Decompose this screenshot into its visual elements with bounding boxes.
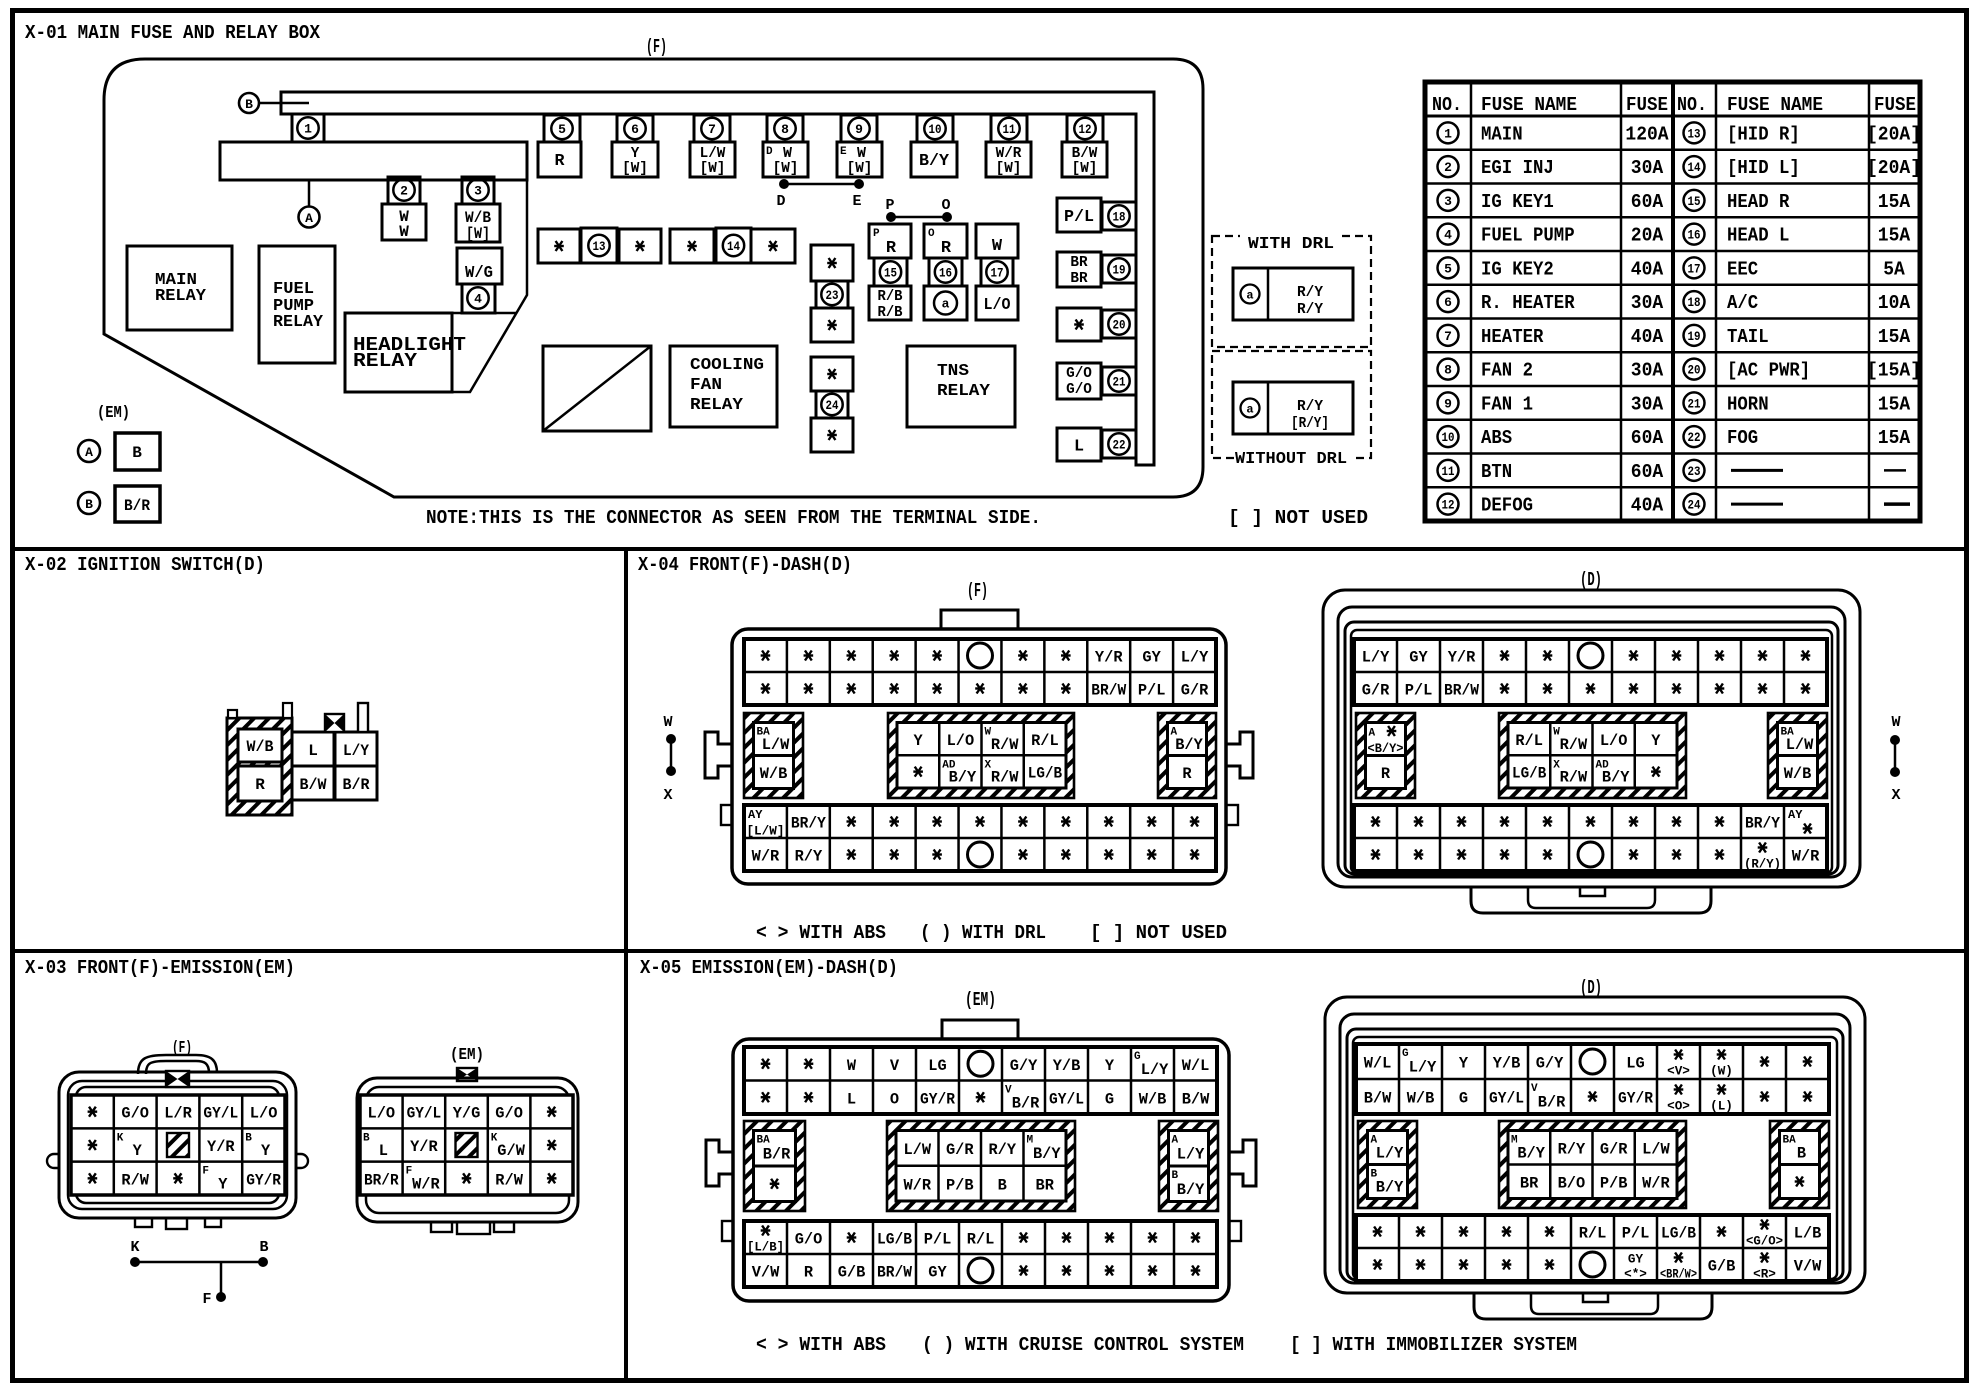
svg-text:R/L: R/L — [1031, 732, 1059, 750]
svg-text:D: D — [776, 193, 785, 210]
svg-text:HEAD R: HEAD R — [1727, 191, 1790, 213]
svg-text:R/Y: R/Y — [1558, 1141, 1586, 1159]
svg-text:O: O — [928, 228, 935, 240]
svg-text:10: 10 — [929, 122, 942, 137]
svg-text:[W]: [W] — [466, 225, 490, 243]
svg-text:B/Y: B/Y — [919, 152, 950, 171]
svg-text:R/B: R/B — [878, 288, 903, 305]
svg-text:W/R: W/R — [1642, 1175, 1670, 1193]
svg-text:X-05 EMISSION(EM)-DASH(D): X-05 EMISSION(EM)-DASH(D) — [640, 957, 898, 979]
svg-text:60A: 60A — [1631, 461, 1664, 483]
svg-text:15: 15 — [1688, 194, 1701, 209]
svg-text:B/W: B/W — [1364, 1090, 1392, 1108]
svg-text:R: R — [255, 776, 265, 794]
svg-text:R/W: R/W — [495, 1171, 523, 1189]
svg-text:R: R — [941, 239, 952, 258]
svg-text:9: 9 — [1444, 396, 1452, 411]
svg-text:[L/B]: [L/B] — [747, 1240, 784, 1255]
svg-text:13: 13 — [593, 239, 606, 254]
svg-text:W: W — [992, 237, 1003, 256]
svg-text:BR/R: BR/R — [364, 1171, 399, 1189]
svg-text:[15A]: [15A] — [1867, 360, 1921, 382]
svg-text:X-04 FRONT(F)-DASH(D): X-04 FRONT(F)-DASH(D) — [638, 554, 852, 576]
svg-text:GY/R: GY/R — [1618, 1090, 1653, 1108]
svg-text:LG/B: LG/B — [1028, 765, 1063, 783]
svg-text:3: 3 — [1444, 194, 1452, 209]
svg-text:Y: Y — [261, 1142, 271, 1160]
svg-text:10A: 10A — [1878, 292, 1911, 314]
svg-text:K: K — [117, 1132, 124, 1144]
svg-text:30A: 30A — [1631, 393, 1664, 415]
svg-text:L/Y: L/Y — [1181, 649, 1209, 667]
svg-text:R: R — [886, 239, 897, 258]
svg-text:L/W: L/W — [903, 1141, 931, 1159]
svg-text:LG: LG — [928, 1057, 946, 1075]
svg-text:Y: Y — [914, 732, 924, 750]
svg-text:F: F — [202, 1166, 209, 1178]
svg-text:8: 8 — [1444, 363, 1452, 378]
svg-text:Y/R: Y/R — [410, 1138, 438, 1156]
svg-text:RELAY: RELAY — [690, 396, 744, 415]
svg-text:BR/Y: BR/Y — [1745, 815, 1780, 833]
svg-text:V/W: V/W — [752, 1264, 780, 1282]
svg-text:X: X — [663, 787, 672, 804]
svg-text:<BR/W>: <BR/W> — [1660, 1267, 1697, 1282]
svg-text:WITH DRL: WITH DRL — [1248, 235, 1334, 254]
svg-text:Y: Y — [218, 1175, 228, 1193]
svg-text:B/Y: B/Y — [1177, 1181, 1205, 1199]
svg-text:17: 17 — [1688, 261, 1701, 276]
svg-text:V: V — [890, 1057, 900, 1075]
svg-text:FUSE NAME: FUSE NAME — [1481, 94, 1577, 116]
svg-text:[ ] NOT USED: [ ] NOT USED — [1090, 922, 1227, 944]
svg-text:G/R: G/R — [946, 1141, 974, 1159]
svg-text:a: a — [1246, 289, 1253, 303]
svg-text:MAIN: MAIN — [1481, 123, 1523, 145]
svg-text:B/Y: B/Y — [1175, 736, 1203, 754]
svg-text:Y: Y — [1651, 732, 1661, 750]
svg-text:BA: BA — [1783, 1135, 1797, 1147]
svg-text:R/L: R/L — [1515, 732, 1543, 750]
svg-text:L/W: L/W — [1642, 1141, 1670, 1159]
svg-text:14: 14 — [727, 239, 740, 254]
svg-text:R/W: R/W — [991, 769, 1019, 787]
svg-text:DEFOG: DEFOG — [1481, 495, 1533, 517]
svg-text:22: 22 — [1113, 438, 1126, 453]
svg-text:GY/L: GY/L — [203, 1105, 238, 1123]
svg-text:< > WITH ABS: < > WITH ABS — [756, 1334, 886, 1356]
svg-text:7: 7 — [1444, 329, 1452, 344]
svg-text:G: G — [1105, 1090, 1114, 1108]
svg-text:P: P — [885, 197, 894, 214]
svg-text:12: 12 — [1442, 498, 1455, 513]
svg-text:NO.: NO. — [1677, 94, 1707, 116]
svg-text:FUEL PUMP: FUEL PUMP — [1481, 225, 1575, 247]
svg-text:TNS: TNS — [937, 362, 969, 381]
svg-text:F: F — [202, 1291, 211, 1308]
svg-text:R/Y: R/Y — [1297, 301, 1323, 318]
svg-text:[ ] NOT USED: [ ] NOT USED — [1228, 507, 1368, 529]
svg-text:BR: BR — [1520, 1175, 1539, 1193]
svg-text:( ) WITH CRUISE CONTROL SYSTEM: ( ) WITH CRUISE CONTROL SYSTEM — [922, 1334, 1244, 1356]
svg-text:RELAY: RELAY — [273, 313, 324, 332]
svg-text:15A: 15A — [1878, 427, 1911, 449]
svg-text:R/Y: R/Y — [988, 1141, 1016, 1159]
svg-text:B/Y: B/Y — [1033, 1145, 1061, 1163]
svg-text:40A: 40A — [1631, 326, 1664, 348]
svg-text:8: 8 — [781, 122, 789, 137]
svg-text:Y/R: Y/R — [1095, 649, 1123, 667]
svg-text:B: B — [998, 1176, 1008, 1194]
svg-text:HEAD L: HEAD L — [1727, 225, 1789, 247]
svg-text:B: B — [1797, 1145, 1807, 1163]
svg-text:L/Y: L/Y — [1177, 1145, 1205, 1163]
svg-text:(R/Y): (R/Y) — [1744, 857, 1781, 872]
svg-text:P: P — [873, 228, 880, 240]
svg-text:16: 16 — [1688, 228, 1701, 243]
svg-text:P/B: P/B — [1600, 1175, 1628, 1193]
svg-text:L/Y: L/Y — [1362, 649, 1390, 667]
svg-text:40A: 40A — [1631, 495, 1664, 517]
svg-text:11: 11 — [1442, 464, 1455, 479]
svg-text:GY: GY — [1142, 649, 1161, 667]
svg-text:(F): (F) — [646, 36, 667, 58]
svg-text:B/R: B/R — [1538, 1094, 1566, 1112]
svg-text:D: D — [766, 146, 773, 158]
svg-text:B/Y: B/Y — [1376, 1179, 1404, 1197]
svg-text:21: 21 — [1113, 375, 1126, 390]
svg-text:GY/R: GY/R — [246, 1171, 281, 1189]
svg-text:[HID R]: [HID R] — [1727, 123, 1800, 145]
svg-text:B/Y: B/Y — [1517, 1145, 1545, 1163]
svg-text:19: 19 — [1113, 263, 1126, 278]
svg-text:[W]: [W] — [773, 160, 799, 177]
svg-text:[W]: [W] — [847, 160, 873, 177]
svg-text:40A: 40A — [1631, 258, 1664, 280]
svg-text:Y: Y — [1105, 1057, 1115, 1075]
svg-text:L/W: L/W — [762, 736, 790, 754]
svg-text:120A: 120A — [1625, 123, 1669, 145]
svg-text:B/Y: B/Y — [1602, 769, 1630, 787]
svg-text:O: O — [941, 197, 950, 214]
svg-text:V/W: V/W — [1794, 1258, 1822, 1276]
svg-text:B/R: B/R — [763, 1145, 791, 1163]
svg-text:GY/R: GY/R — [920, 1090, 955, 1108]
svg-text:G/O: G/O — [795, 1231, 823, 1249]
svg-text:[W]: [W] — [622, 160, 648, 177]
svg-text:B/W: B/W — [1182, 1090, 1210, 1108]
svg-text:P/L: P/L — [1064, 208, 1094, 227]
svg-text:R/Y: R/Y — [1297, 398, 1323, 415]
svg-text:(EM): (EM) — [965, 989, 996, 1011]
svg-text:16: 16 — [939, 266, 952, 281]
svg-text:W/G: W/G — [465, 264, 493, 283]
svg-text:AY: AY — [748, 808, 763, 822]
svg-text:COOLING: COOLING — [690, 356, 764, 375]
svg-text:G/O: G/O — [495, 1105, 523, 1123]
svg-text:< > WITH ABS: < > WITH ABS — [756, 922, 886, 944]
svg-text:<G/O>: <G/O> — [1746, 1234, 1783, 1249]
svg-text:2: 2 — [1444, 160, 1452, 175]
svg-text:A: A — [85, 445, 93, 460]
svg-text:R/L: R/L — [1579, 1225, 1607, 1243]
svg-text:18: 18 — [1113, 210, 1126, 225]
svg-text:Y/G: Y/G — [453, 1105, 481, 1123]
svg-text:(W): (W) — [1710, 1064, 1733, 1079]
svg-text:G/R: G/R — [1181, 682, 1209, 700]
svg-text:NO.: NO. — [1432, 94, 1462, 116]
svg-text:K: K — [130, 1239, 139, 1256]
svg-text:30A: 30A — [1631, 360, 1664, 382]
svg-text:X-01 MAIN FUSE AND RELAY BOX: X-01 MAIN FUSE AND RELAY BOX — [25, 22, 321, 44]
svg-text:W/L: W/L — [1182, 1057, 1210, 1075]
svg-text:3: 3 — [474, 184, 482, 199]
svg-text:RELAY: RELAY — [353, 350, 418, 372]
svg-text:A: A — [1369, 728, 1376, 740]
svg-text:W/B: W/B — [1139, 1090, 1167, 1108]
svg-text:30A: 30A — [1631, 292, 1664, 314]
svg-text:7: 7 — [708, 122, 716, 137]
svg-text:BR/Y: BR/Y — [791, 815, 826, 833]
svg-text:BR/W: BR/W — [1091, 682, 1126, 700]
svg-text:W: W — [1891, 714, 1900, 731]
svg-text:B/R: B/R — [343, 776, 370, 794]
svg-text:B/Y: B/Y — [949, 769, 977, 787]
svg-text:W/R: W/R — [903, 1176, 931, 1194]
svg-text:[L/W]: [L/W] — [746, 824, 784, 839]
svg-text:W: W — [847, 1057, 857, 1075]
svg-text:B: B — [132, 444, 142, 462]
svg-text:W: W — [399, 223, 409, 241]
svg-text:R: R — [1182, 765, 1192, 783]
svg-text:X-03 FRONT(F)-EMISSION(EM): X-03 FRONT(F)-EMISSION(EM) — [25, 957, 295, 979]
svg-text:LG/B: LG/B — [877, 1231, 912, 1249]
svg-text:A/C: A/C — [1727, 292, 1758, 314]
svg-text:B/R: B/R — [1012, 1094, 1040, 1112]
svg-text:W/B: W/B — [1407, 1090, 1435, 1108]
svg-text:[HID L]: [HID L] — [1727, 157, 1800, 179]
svg-text:FUSE: FUSE — [1626, 94, 1668, 116]
svg-text:G/O: G/O — [1066, 365, 1092, 382]
svg-text:B/O: B/O — [1558, 1175, 1586, 1193]
svg-text:BTN: BTN — [1481, 461, 1512, 483]
svg-text:W/R: W/R — [1792, 848, 1820, 866]
svg-text:1: 1 — [1444, 126, 1452, 141]
svg-text:A: A — [305, 211, 313, 226]
svg-text:FAN 1: FAN 1 — [1481, 393, 1533, 415]
svg-text:R: R — [804, 1264, 814, 1282]
svg-text:20: 20 — [1688, 363, 1701, 378]
svg-text:(EM): (EM) — [97, 404, 130, 423]
svg-text:L/Y: L/Y — [1141, 1061, 1169, 1079]
svg-text:W/B: W/B — [760, 765, 788, 783]
svg-text:R. HEATER: R. HEATER — [1481, 292, 1575, 314]
svg-text:19: 19 — [1688, 329, 1701, 344]
svg-text:11: 11 — [1003, 122, 1016, 137]
svg-text:18: 18 — [1688, 295, 1701, 310]
svg-text:G: G — [1459, 1090, 1468, 1108]
svg-text:2: 2 — [400, 184, 408, 199]
svg-text:( ) WITH DRL: ( ) WITH DRL — [920, 922, 1046, 944]
svg-text:P/L: P/L — [1138, 682, 1166, 700]
svg-text:G/O: G/O — [121, 1105, 149, 1123]
svg-text:<B/Y>: <B/Y> — [1368, 741, 1404, 756]
svg-text:[R/Y]: [R/Y] — [1291, 415, 1329, 432]
svg-text:22: 22 — [1688, 430, 1701, 445]
svg-text:Y: Y — [133, 1142, 143, 1160]
svg-text:P/B: P/B — [946, 1176, 974, 1194]
svg-text:24: 24 — [1688, 498, 1701, 513]
svg-text:(EM): (EM) — [450, 1046, 484, 1065]
svg-text:R/W: R/W — [991, 736, 1019, 754]
svg-text:a: a — [1246, 403, 1253, 417]
svg-text:FAN 2: FAN 2 — [1481, 360, 1533, 382]
svg-text:LG: LG — [1626, 1055, 1644, 1073]
svg-text:R: R — [555, 152, 566, 171]
svg-text:BR: BR — [1070, 254, 1087, 271]
svg-text:B/R: B/R — [124, 497, 150, 515]
svg-text:R/Y: R/Y — [1297, 284, 1323, 301]
svg-text:FUSE NAME: FUSE NAME — [1727, 94, 1823, 116]
svg-text:L/Y: L/Y — [1409, 1059, 1437, 1077]
svg-text:G/R: G/R — [1362, 682, 1390, 700]
svg-text:<*>: <*> — [1624, 1267, 1647, 1282]
svg-text:E: E — [852, 193, 861, 210]
svg-text:24: 24 — [826, 398, 839, 413]
svg-text:30A: 30A — [1631, 157, 1664, 179]
svg-text:1: 1 — [304, 122, 312, 137]
svg-text:P/L: P/L — [1622, 1225, 1650, 1243]
svg-text:G/W: G/W — [497, 1142, 525, 1160]
svg-text:[AC PWR]: [AC PWR] — [1727, 360, 1810, 382]
svg-text:L/O: L/O — [1600, 732, 1628, 750]
svg-text:a: a — [942, 297, 950, 312]
svg-text:FUSE: FUSE — [1874, 94, 1916, 116]
svg-text:RELAY: RELAY — [937, 382, 991, 401]
svg-text:HEATER: HEATER — [1481, 326, 1544, 348]
svg-text:E: E — [840, 146, 847, 158]
svg-text:EEC: EEC — [1727, 258, 1758, 280]
svg-text:L/W: L/W — [1786, 736, 1814, 754]
svg-text:WITHOUT DRL: WITHOUT DRL — [1235, 450, 1347, 469]
svg-text:5: 5 — [1444, 261, 1452, 276]
svg-text:GY: GY — [928, 1264, 947, 1282]
svg-text:(L): (L) — [1710, 1099, 1733, 1114]
svg-text:HORN: HORN — [1727, 393, 1769, 415]
svg-text:R: R — [1381, 765, 1391, 783]
svg-text:[W]: [W] — [1072, 160, 1098, 177]
svg-text:BR/W: BR/W — [877, 1264, 912, 1282]
svg-text:L/Y: L/Y — [1376, 1145, 1404, 1163]
svg-text:B: B — [85, 497, 93, 512]
svg-text:5A: 5A — [1883, 258, 1905, 280]
svg-text:W/R: W/R — [752, 848, 780, 866]
svg-text:L/O: L/O — [984, 296, 1011, 315]
svg-text:EGI INJ: EGI INJ — [1481, 157, 1554, 179]
svg-text:5: 5 — [558, 122, 566, 137]
svg-text:O: O — [890, 1090, 900, 1108]
svg-text:L/O: L/O — [368, 1105, 396, 1123]
svg-text:13: 13 — [1688, 126, 1701, 141]
svg-text:15: 15 — [884, 266, 897, 281]
svg-text:W/B: W/B — [1784, 765, 1812, 783]
svg-text:B: B — [363, 1132, 370, 1144]
svg-text:G/B: G/B — [838, 1264, 866, 1282]
svg-text:Y/B: Y/B — [1053, 1057, 1081, 1075]
svg-text:L/Y: L/Y — [343, 742, 369, 760]
svg-text:X: X — [1891, 787, 1900, 804]
svg-text:60A: 60A — [1631, 427, 1664, 449]
svg-text:X-02 IGNITION SWITCH(D): X-02 IGNITION SWITCH(D) — [25, 554, 265, 576]
svg-text:9: 9 — [855, 122, 863, 137]
svg-text:15A: 15A — [1878, 225, 1911, 247]
svg-text:Y: Y — [1459, 1055, 1469, 1073]
svg-text:GY/L: GY/L — [407, 1105, 442, 1123]
svg-text:BR: BR — [1036, 1176, 1055, 1194]
svg-text:IG KEY1: IG KEY1 — [1481, 191, 1554, 213]
svg-text:GY: GY — [1409, 649, 1428, 667]
svg-text:GY/L: GY/L — [1049, 1090, 1084, 1108]
svg-text:P/L: P/L — [1405, 682, 1433, 700]
svg-text:10: 10 — [1442, 430, 1455, 445]
svg-text:6: 6 — [1444, 295, 1452, 310]
svg-text:20A: 20A — [1631, 225, 1664, 247]
svg-text:L/R: L/R — [164, 1105, 192, 1123]
svg-text:(F): (F) — [967, 580, 988, 602]
svg-text:[ ] WITH IMMOBILIZER SYSTEM: [ ] WITH IMMOBILIZER SYSTEM — [1290, 1334, 1577, 1356]
svg-text:14: 14 — [1688, 160, 1701, 175]
svg-text:<V>: <V> — [1667, 1064, 1690, 1079]
svg-text:NOTE:THIS IS THE CONNECTOR AS: NOTE:THIS IS THE CONNECTOR AS SEEN FROM … — [426, 507, 1041, 529]
svg-text:23: 23 — [826, 288, 839, 303]
svg-text:L: L — [847, 1090, 856, 1108]
svg-text:R/B: R/B — [878, 304, 903, 321]
svg-text:R/L: R/L — [967, 1231, 995, 1249]
svg-text:LG/B: LG/B — [1512, 765, 1547, 783]
svg-text:R/W: R/W — [121, 1171, 149, 1189]
svg-text:[20A]: [20A] — [1867, 123, 1921, 145]
svg-text:B/W: B/W — [300, 776, 327, 794]
svg-text:4: 4 — [1444, 228, 1452, 243]
svg-text:L/O: L/O — [250, 1105, 278, 1123]
svg-text:L/O: L/O — [947, 732, 975, 750]
svg-text:15A: 15A — [1878, 191, 1911, 213]
svg-text:B: B — [259, 1239, 268, 1256]
svg-text:IG KEY2: IG KEY2 — [1481, 258, 1554, 280]
svg-text:W/B: W/B — [247, 738, 274, 756]
svg-text:W/R: W/R — [412, 1175, 440, 1193]
svg-text:L: L — [308, 742, 318, 760]
svg-text:W/L: W/L — [1364, 1055, 1392, 1073]
svg-text:B: B — [245, 1132, 252, 1144]
svg-text:21: 21 — [1688, 396, 1701, 411]
svg-text:L: L — [1074, 438, 1084, 457]
svg-text:6: 6 — [631, 122, 639, 137]
svg-text:<O>: <O> — [1667, 1099, 1690, 1114]
svg-text:R/W: R/W — [1560, 769, 1588, 787]
svg-text:GY: GY — [1628, 1252, 1643, 1267]
svg-text:G/O: G/O — [1066, 381, 1092, 398]
svg-text:4: 4 — [474, 292, 482, 307]
svg-text:20: 20 — [1113, 318, 1126, 333]
svg-text:[W]: [W] — [700, 160, 726, 177]
svg-text:[W]: [W] — [996, 160, 1022, 177]
svg-text:(D): (D) — [1580, 569, 1602, 591]
svg-text:G/Y: G/Y — [1536, 1055, 1564, 1073]
svg-text:G/Y: G/Y — [1010, 1057, 1038, 1075]
svg-text:15A: 15A — [1878, 326, 1911, 348]
svg-text:ABS: ABS — [1481, 427, 1512, 449]
